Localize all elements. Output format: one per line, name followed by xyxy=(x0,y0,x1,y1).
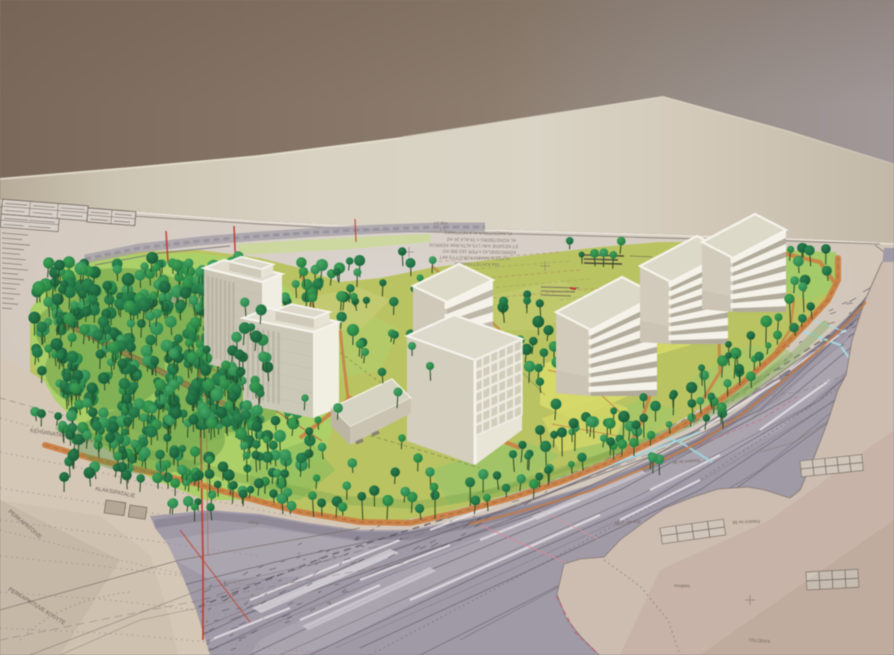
svg-text:Ratakm tw 98: Ratakm tw 98 xyxy=(732,519,760,525)
svg-text:mat 14: mat 14 xyxy=(433,221,448,226)
svg-text:saakma: saakma xyxy=(674,583,690,589)
svg-text:1:1: 1:1 xyxy=(439,227,446,232)
